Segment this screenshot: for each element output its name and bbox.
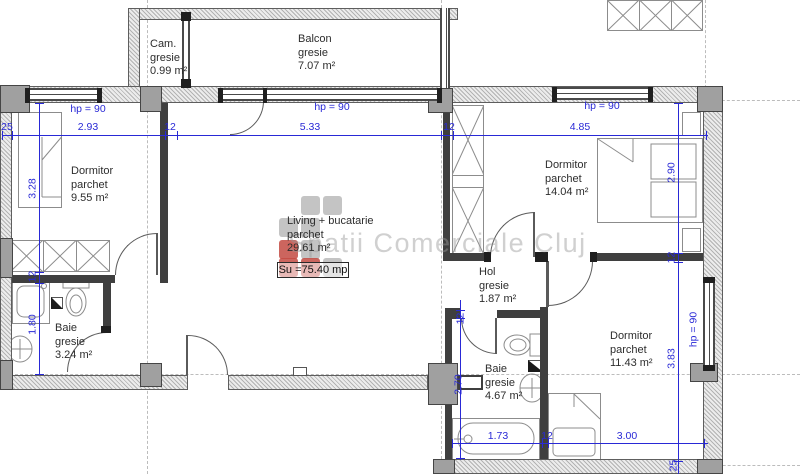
column-top-right	[697, 86, 723, 112]
usable-area-box: Su =75.40 mp	[277, 262, 349, 278]
column-top-storage	[140, 86, 162, 112]
window-jamb	[703, 365, 715, 371]
wall-balcony-right-glass	[440, 8, 450, 88]
dim-label: 5.33	[290, 122, 330, 133]
balcony-door-jamb	[263, 88, 267, 103]
threshold-notch	[293, 367, 307, 376]
watermark-logo-square	[301, 196, 320, 215]
wall-balcony-left	[128, 8, 140, 90]
column-entrance	[140, 363, 162, 387]
door-leaf-bedroom-left	[156, 233, 158, 275]
dim-label: 1.73	[478, 431, 518, 442]
door-arc-bedroom-bot-right	[548, 261, 593, 306]
door-leaf-bath-mid	[495, 318, 497, 354]
dim-label: 2.90	[667, 153, 678, 193]
dim-label: 12	[439, 122, 459, 133]
room-label-baie-mid: Baiegresie4.67 m²	[485, 363, 522, 404]
wall-exterior-bottom-center	[228, 375, 428, 390]
dim-tick	[35, 374, 44, 375]
window-height-label: hp = 90	[574, 101, 630, 112]
window-height-label: hp = 90	[689, 302, 700, 358]
dim-tick	[706, 131, 707, 140]
room-label-hol: Holgresie1.87 m²	[479, 266, 516, 307]
dim-line-right	[678, 103, 679, 474]
dim-label: 2.70	[454, 365, 465, 405]
floor-plan: Spatii Comerciale Cluj Cam.gresie0.99 m²…	[0, 0, 800, 474]
dim-tick	[674, 103, 683, 104]
room-label-dormitor-left: Dormitorparchet9.55 m²	[71, 165, 113, 206]
window-jamb	[703, 277, 715, 283]
room-label-dormitor-top-right: Dormitorparchet14.04 m²	[545, 159, 588, 200]
wall-bath-left-east	[103, 278, 111, 332]
drain-marker-bath-left	[51, 297, 63, 309]
window-bedroom-top-right	[557, 87, 648, 100]
dim-tick	[456, 458, 465, 459]
dim-label: 12	[160, 122, 180, 133]
dim-label: 4.85	[560, 122, 600, 133]
dim-label: 25	[0, 122, 16, 133]
window-jamb	[648, 87, 653, 102]
window-bedroom-right-side	[703, 283, 715, 365]
dim-line-left	[39, 103, 40, 375]
column-bottom-left	[0, 360, 13, 390]
window-jamb	[437, 88, 442, 103]
dim-line-top	[2, 135, 708, 136]
window-living-balcony	[223, 88, 437, 101]
door-arc-entrance	[188, 335, 228, 375]
dim-label: 12	[28, 263, 39, 291]
bed-bedroom-top-right	[597, 138, 703, 223]
dim-tick	[704, 439, 705, 448]
column-bottom-right	[697, 459, 723, 474]
window-jamb	[552, 87, 557, 102]
column-left-middle	[0, 238, 13, 278]
storage-door-jamb-top	[181, 12, 191, 21]
wall-bath-mid-north	[497, 310, 540, 318]
toilet-bath-mid	[502, 332, 544, 358]
door-arc-bedroom-left	[115, 233, 157, 275]
room-label-dormitor-bot-right: Dormitorparchet11.43 m²	[610, 330, 653, 371]
column-bottom-bath	[433, 459, 455, 474]
window-bedroom-left	[30, 88, 97, 101]
dim-line-bottom	[452, 443, 708, 444]
dim-tick	[452, 439, 453, 448]
dim-label: 3.00	[607, 431, 647, 442]
bed-bedroom-bot-right	[548, 393, 601, 460]
door-leaf-bedroom-bot-right	[546, 261, 549, 307]
window-jamb	[218, 88, 223, 103]
wardrobe-bedroom-bot-right	[607, 0, 703, 31]
wardrobe-bedroom-left	[10, 240, 110, 272]
bed-bedroom-left	[18, 112, 62, 208]
dim-label: 2.93	[68, 122, 108, 133]
watermark-logo-square	[323, 196, 342, 215]
dim-label: 12	[535, 431, 559, 442]
dim-label: 25	[669, 452, 680, 474]
dim-label: 12	[456, 305, 467, 333]
storage-door-jamb-bottom	[181, 79, 191, 88]
window-jamb	[97, 88, 102, 103]
bath-left-door-cap	[101, 326, 111, 333]
window-height-label: hp = 90	[60, 104, 116, 115]
door-leaf-entrance	[186, 335, 188, 375]
nightstand-bottom	[682, 228, 701, 252]
room-label-cam: Cam.gresie0.99 m²	[150, 38, 187, 79]
nightstand-top	[682, 112, 701, 136]
wall-bedrooms-divider	[592, 253, 703, 261]
door-jamb	[590, 252, 597, 262]
room-label-balcon: Balcongresie7.07 m²	[298, 33, 335, 74]
dim-label: 12	[667, 244, 678, 272]
dim-label: 1.80	[28, 306, 39, 344]
dim-label: 3.28	[28, 170, 39, 208]
window-jamb	[25, 88, 30, 103]
dim-label: 3.83	[667, 339, 678, 379]
wall-balcony-top	[128, 8, 458, 20]
dim-tick	[35, 103, 44, 104]
room-label-baie-left: Baiegresie3.24 m²	[55, 322, 92, 363]
window-height-label: hp = 90	[304, 102, 360, 113]
room-label-living: Living + bucatarieparchet29.61 m²	[287, 215, 374, 256]
door-arc-balcony	[230, 101, 264, 135]
